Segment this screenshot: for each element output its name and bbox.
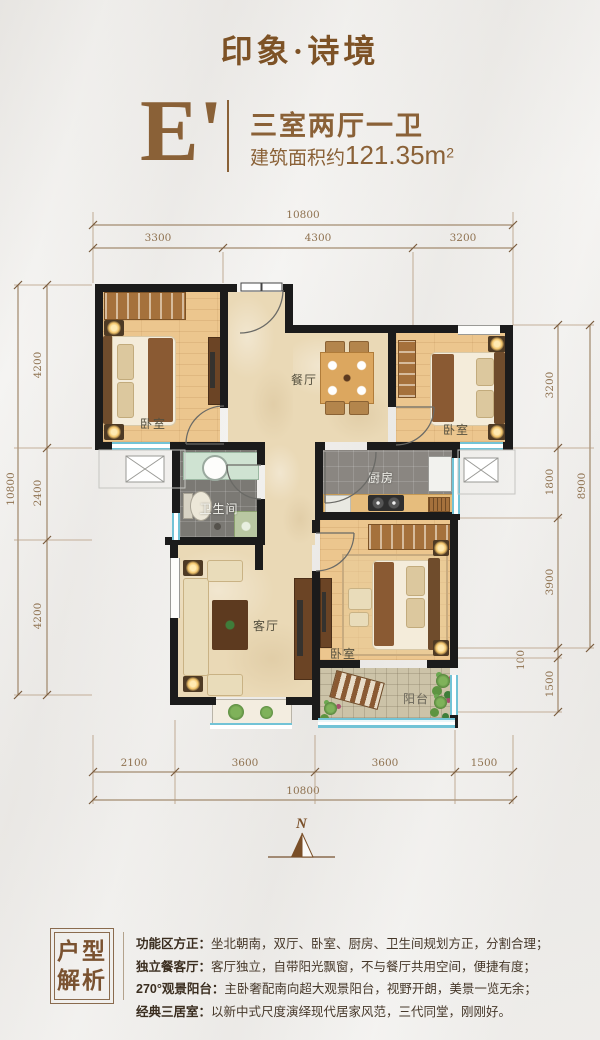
dining-floor-a — [228, 292, 293, 442]
pillow-icon — [476, 358, 494, 386]
stove-icon — [368, 495, 404, 511]
analysis-item: 独立餐客厅：客厅独立，自带阳光飘窗，不与餐厅共用空间，便捷有度； — [136, 956, 588, 979]
wall-segment — [95, 442, 112, 450]
wall-segment — [165, 537, 265, 545]
blanket-icon — [148, 338, 173, 422]
brand-title: 印象·诗境 — [0, 26, 600, 72]
room-label-balcony: 阳台 — [393, 690, 439, 707]
bay-window-glass — [210, 723, 292, 729]
dim-left-1: 4200 — [32, 335, 44, 395]
window — [458, 325, 500, 335]
armchair-icon — [207, 560, 243, 582]
hallway-floor — [265, 442, 315, 545]
tv-icon — [210, 352, 215, 388]
wall-segment — [315, 450, 323, 520]
bed-headboard-icon — [428, 558, 440, 650]
lamp-icon — [434, 641, 448, 655]
pillow-icon — [117, 382, 134, 418]
wall-segment — [388, 333, 396, 407]
layout-type: 三室两厅一卫 — [250, 104, 424, 143]
area-superscript: 2 — [446, 145, 454, 161]
plant-icon — [228, 704, 244, 720]
wall-segment — [170, 442, 265, 450]
dim-bottom-total: 10800 — [263, 785, 343, 797]
dim-top-3: 3200 — [423, 232, 503, 244]
dim-bottom-2: 3600 — [205, 757, 285, 769]
dining-table-icon — [320, 352, 374, 404]
room-label-bathroom: 卫生间 — [196, 500, 242, 517]
vent-icon — [428, 497, 450, 512]
bed-headboard-icon — [494, 352, 505, 424]
analysis-box: 户型 解析 — [50, 928, 114, 1004]
pillow-icon — [406, 566, 425, 596]
analysis-item: 经典三居室：以新中式尺度演绎现代居家风范，三代同堂，刚刚好。 — [136, 1001, 588, 1024]
window — [112, 442, 170, 450]
header-divider — [227, 100, 229, 172]
dim-right-4: 100 — [515, 630, 527, 690]
analysis-item-text: 坐北朝南，双厅、卧室、厨房、卫生间规划方正，分割合理； — [211, 937, 549, 951]
tv-icon — [297, 600, 303, 656]
wall-segment — [503, 442, 513, 450]
analysis-item: 270°观景阳台：主卧奢配南向超大观景阳台，视野开朗，美景一览无余； — [136, 978, 588, 1001]
wall-segment — [285, 284, 293, 333]
lamp-icon — [490, 337, 504, 351]
window — [450, 675, 458, 715]
dim-bottom-4: 1500 — [444, 757, 524, 769]
dim-top-total: 10800 — [263, 209, 343, 221]
wardrobe-icon — [104, 292, 186, 320]
blanket-icon — [432, 354, 454, 422]
area-prefix: 建筑面积约 — [250, 148, 345, 169]
dim-left-3: 4200 — [32, 586, 44, 646]
dim-left-total: 10800 — [5, 459, 17, 519]
chair-icon — [325, 401, 345, 415]
wall-segment — [315, 442, 325, 450]
analysis-item-label: 270°观景阳台： — [136, 982, 224, 996]
lamp-icon — [107, 425, 121, 439]
lamp-icon — [434, 541, 448, 555]
pillow-icon — [117, 344, 134, 380]
wall-segment — [315, 512, 460, 520]
wall-segment — [170, 697, 216, 705]
lamp-icon — [186, 561, 200, 575]
wall-segment — [257, 450, 265, 465]
compass-north-label: N — [296, 816, 307, 833]
armchair-icon — [207, 674, 243, 696]
dim-right-1: 3200 — [544, 355, 556, 415]
blanket-icon — [374, 562, 394, 646]
analysis-item-text: 客厅独立，自带阳光飘窗，不与餐厅共用空间，便捷有度； — [211, 960, 536, 974]
lamp-icon — [490, 425, 504, 439]
dim-right-2: 1800 — [544, 452, 556, 512]
room-label-kitchen: 厨房 — [358, 469, 404, 486]
window — [460, 442, 503, 450]
dim-right-3: 3900 — [544, 552, 556, 612]
ottoman-icon — [349, 612, 369, 627]
analysis-bullets: 功能区方正：坐北朝南，双厅、卧室、厨房、卫生间规划方正，分割合理； 独立餐客厅：… — [136, 933, 588, 1023]
dim-right-total: 8900 — [576, 456, 588, 516]
dim-bottom-3: 3600 — [345, 757, 425, 769]
compass-icon — [268, 833, 335, 857]
analysis-box-inner: 户型 解析 — [54, 932, 110, 1000]
window — [452, 458, 460, 514]
sofa-icon — [183, 578, 209, 676]
pillow-icon — [476, 390, 494, 418]
wall-segment — [367, 442, 460, 450]
wall-segment — [312, 520, 320, 533]
area-value: 121.35m — [345, 140, 446, 170]
wall-segment — [286, 697, 320, 705]
room-label-dining: 餐厅 — [281, 371, 327, 388]
room-label-bedroom-right: 卧室 — [433, 421, 479, 438]
kitchen-sink-icon — [325, 495, 351, 513]
analysis-item-label: 独立餐客厅： — [136, 960, 211, 974]
wall-segment — [505, 325, 513, 450]
room-label-bedroom-left: 卧室 — [130, 415, 176, 432]
unit-code: E' — [140, 88, 223, 176]
floor-drain-icon — [214, 523, 221, 530]
room-label-living: 客厅 — [243, 617, 289, 634]
analysis-item-text: 主卧奢配南向超大观景阳台，视野开朗，美景一览无余； — [224, 982, 537, 996]
wall-segment — [427, 660, 458, 668]
analysis-item-label: 经典三居室： — [136, 1005, 211, 1019]
room-label-bedroom-master: 卧室 — [320, 645, 366, 662]
armchair-icon — [348, 588, 372, 610]
footer-divider — [123, 932, 124, 1000]
wall-segment — [255, 545, 263, 570]
lamp-icon — [107, 321, 121, 335]
analysis-item-label: 功能区方正： — [136, 937, 211, 951]
wall-segment — [95, 284, 237, 292]
window — [170, 558, 180, 618]
tv-icon — [322, 592, 326, 632]
wardrobe-icon — [398, 340, 416, 398]
analysis-box-title-line1: 户型 — [57, 937, 107, 966]
plants-icon — [436, 674, 450, 688]
balcony-window — [318, 718, 455, 728]
wall-segment — [293, 325, 458, 333]
plants-icon — [324, 702, 337, 715]
lamp-icon — [186, 677, 200, 691]
analysis-item: 功能区方正：坐北朝南，双厅、卧室、厨房、卫生间规划方正，分割合理； — [136, 933, 588, 956]
chair-icon — [349, 401, 369, 415]
window — [172, 513, 180, 540]
wall-segment — [450, 520, 458, 660]
wall-segment — [95, 284, 103, 450]
dim-top-1: 3300 — [118, 232, 198, 244]
dim-bottom-1: 2100 — [94, 757, 174, 769]
analysis-box-title-line2: 解析 — [57, 966, 107, 995]
dim-left-2: 2400 — [32, 463, 44, 523]
plant-icon — [260, 706, 273, 719]
dim-right-5: 1500 — [544, 654, 556, 714]
area-line: 建筑面积约121.35m2 — [250, 140, 454, 171]
fridge-icon — [428, 456, 452, 492]
dim-top-2: 4300 — [278, 232, 358, 244]
sink-basin-icon — [202, 455, 228, 481]
analysis-item-text: 以新中式尺度演绎现代居家风范，三代同堂，刚刚好。 — [211, 1005, 511, 1019]
pillow-icon — [406, 598, 425, 628]
wall-segment — [220, 284, 228, 408]
